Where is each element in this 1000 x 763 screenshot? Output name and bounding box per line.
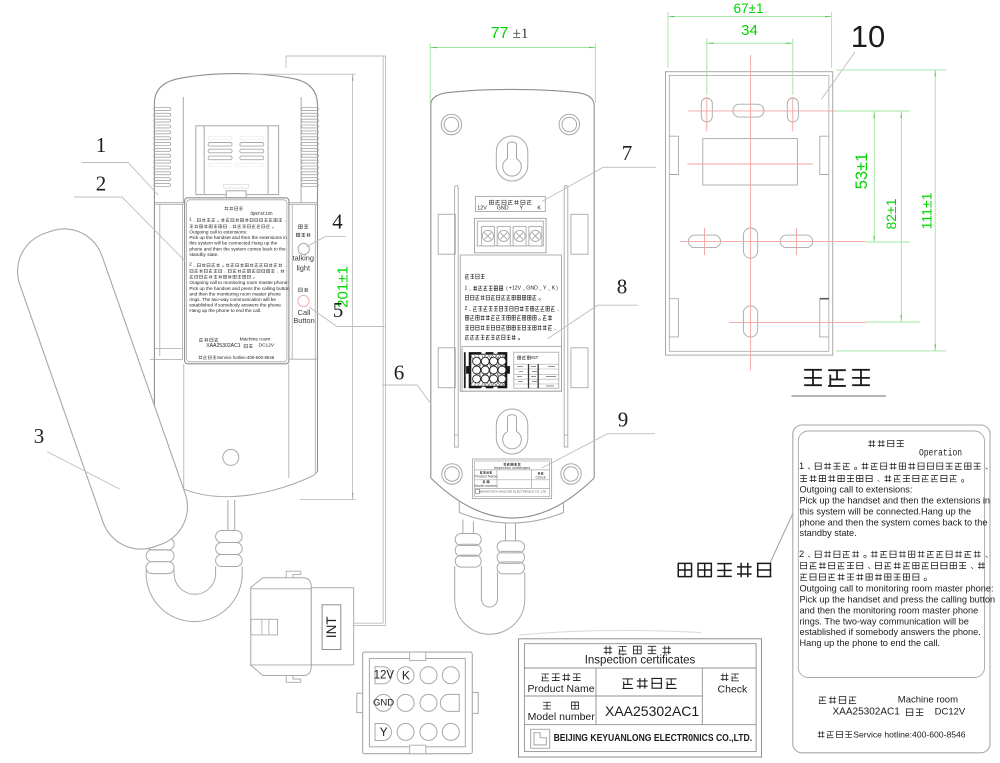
- svg-text:12V: 12V: [477, 206, 487, 212]
- svg-text:Product Name: Product Name: [475, 474, 498, 478]
- svg-text:this system will be connected.: this system will be connected.Hang up th…: [800, 506, 972, 516]
- svg-text:67±1: 67±1: [734, 1, 764, 16]
- svg-text:1: 1: [96, 133, 107, 157]
- svg-text:1: 1: [465, 285, 468, 291]
- svg-text:standby state.: standby state.: [800, 528, 857, 538]
- svg-text:K: K: [402, 668, 410, 682]
- svg-text:K: K: [537, 206, 541, 212]
- svg-text:±1: ±1: [513, 26, 529, 42]
- svg-text:and then the monitoring room m: and then the monitoring room master phon…: [800, 605, 979, 615]
- svg-text:BEIJING KEYUANLONG ELECTR0NICS: BEIJING KEYUANLONG ELECTR0NICS CO.,LTD.: [479, 490, 547, 494]
- svg-text:GND: GND: [373, 697, 394, 708]
- svg-text:34: 34: [741, 22, 758, 39]
- svg-text:XAA25302AC1: XAA25302AC1: [833, 707, 901, 718]
- svg-text:BEIJING KEYUANLONG ELECTR0NICS: BEIJING KEYUANLONG ELECTR0NICS CO.,LTD.: [554, 732, 753, 744]
- svg-text:Pick up the handset and press: Pick up the handset and press the callin…: [800, 594, 996, 604]
- svg-text:K: K: [552, 285, 556, 291]
- svg-text:Y: Y: [380, 725, 388, 739]
- svg-text:DC12V: DC12V: [935, 707, 966, 718]
- svg-text:8: 8: [617, 275, 628, 299]
- svg-text:talking: talking: [293, 253, 314, 262]
- svg-text:5: 5: [333, 298, 344, 322]
- svg-text:Outgoing call to extensions:: Outgoing call to extensions:: [800, 484, 913, 494]
- svg-text:Service hotline:400-600-8546: Service hotline:400-600-8546: [853, 730, 965, 740]
- svg-text:111±1: 111±1: [919, 192, 935, 229]
- svg-text:3: 3: [34, 424, 45, 448]
- svg-text:GND: GND: [526, 285, 538, 291]
- svg-text:7: 7: [622, 141, 633, 165]
- svg-text:2: 2: [799, 549, 804, 559]
- svg-text:Inspection certificates: Inspection certificates: [585, 654, 696, 666]
- svg-text:77: 77: [491, 25, 509, 42]
- svg-text:Machine room: Machine room: [898, 695, 958, 706]
- svg-text:6: 6: [394, 361, 405, 385]
- svg-text:82±1: 82±1: [883, 198, 899, 229]
- svg-text:Operation: Operation: [919, 447, 962, 459]
- svg-text:rings. The two-way communicati: rings. The two-way communication will be: [800, 616, 969, 626]
- svg-text:XAA25302AC1: XAA25302AC1: [605, 703, 699, 719]
- svg-text:GND: GND: [497, 206, 509, 212]
- svg-text:9: 9: [618, 408, 629, 432]
- svg-text:Hang up the phone to end the c: Hang up the phone to end the call.: [800, 638, 940, 648]
- svg-text:1: 1: [799, 461, 804, 471]
- svg-text:Check: Check: [718, 684, 749, 696]
- svg-text:10: 10: [851, 19, 885, 54]
- svg-text:Check: Check: [536, 475, 546, 479]
- svg-text:Y: Y: [519, 206, 523, 212]
- svg-text:Model number: Model number: [528, 711, 596, 723]
- svg-text:phone and then the system come: phone and then the system comes back to …: [800, 517, 988, 527]
- svg-text:Y: Y: [543, 285, 547, 291]
- svg-text:+12V: +12V: [509, 285, 522, 291]
- svg-text:INT: INT: [324, 616, 339, 638]
- svg-text:2: 2: [96, 172, 107, 196]
- svg-text:Outgoing call to monitoring ro: Outgoing call to monitoring room master …: [800, 583, 994, 593]
- svg-text:12V: 12V: [374, 669, 395, 681]
- svg-text:Button: Button: [293, 316, 314, 325]
- svg-text:2: 2: [465, 306, 468, 312]
- svg-text:Product Name: Product Name: [527, 683, 594, 695]
- svg-text:53±1: 53±1: [853, 153, 871, 190]
- svg-text:Model number: Model number: [475, 484, 499, 488]
- svg-text:established if somebody answe: established if somebody answers the phon…: [800, 627, 981, 637]
- svg-text:4: 4: [332, 209, 343, 233]
- svg-text:INT: INT: [531, 355, 538, 360]
- svg-text:light: light: [297, 263, 311, 272]
- svg-text:Pick up the handset and then t: Pick up the handset and then the extensi…: [800, 495, 991, 505]
